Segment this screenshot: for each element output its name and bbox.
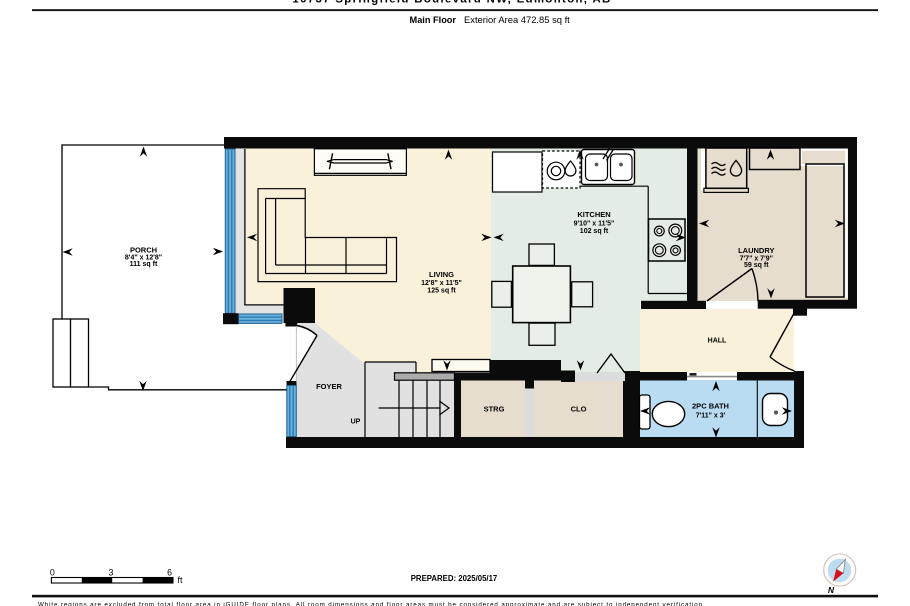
svg-text:12'8" x 11'5": 12'8" x 11'5": [421, 280, 462, 287]
svg-text:0: 0: [50, 568, 55, 578]
svg-text:UP: UP: [351, 419, 361, 426]
svg-text:10737 Springfield Boulevard NW: 10737 Springfield Boulevard NW, Edmonton…: [292, 0, 611, 5]
svg-text:LIVING: LIVING: [429, 270, 454, 279]
svg-text:Exterior Area 472.85 sq ft: Exterior Area 472.85 sq ft: [464, 14, 570, 25]
svg-text:KITCHEN: KITCHEN: [577, 210, 610, 219]
svg-text:PREPARED: 2025/05/17: PREPARED: 2025/05/17: [411, 574, 498, 583]
svg-text:N: N: [828, 585, 835, 595]
svg-text:White regions are excluded fro: White regions are excluded from total fl…: [38, 601, 706, 606]
svg-text:STRG: STRG: [484, 404, 505, 413]
svg-text:7'11" x 3': 7'11" x 3': [696, 413, 726, 420]
svg-text:ft: ft: [178, 575, 183, 585]
svg-text:125 sq ft: 125 sq ft: [427, 288, 456, 295]
svg-text:9'10" x 11'5": 9'10" x 11'5": [574, 221, 615, 228]
svg-text:FOYER: FOYER: [316, 382, 342, 391]
svg-text:2PC BATH: 2PC BATH: [692, 402, 729, 411]
svg-text:3: 3: [109, 568, 114, 578]
svg-text:111 sq ft: 111 sq ft: [130, 261, 158, 268]
svg-text:59 sq ft: 59 sq ft: [744, 262, 769, 269]
svg-text:6: 6: [167, 568, 172, 578]
svg-text:CLO: CLO: [571, 405, 587, 414]
svg-text:HALL: HALL: [708, 338, 727, 345]
svg-text:PORCH: PORCH: [130, 245, 157, 254]
svg-text:LAUNDRY: LAUNDRY: [738, 246, 774, 255]
svg-text:Main Floor: Main Floor: [410, 15, 457, 25]
svg-text:102 sq ft: 102 sq ft: [580, 228, 609, 235]
